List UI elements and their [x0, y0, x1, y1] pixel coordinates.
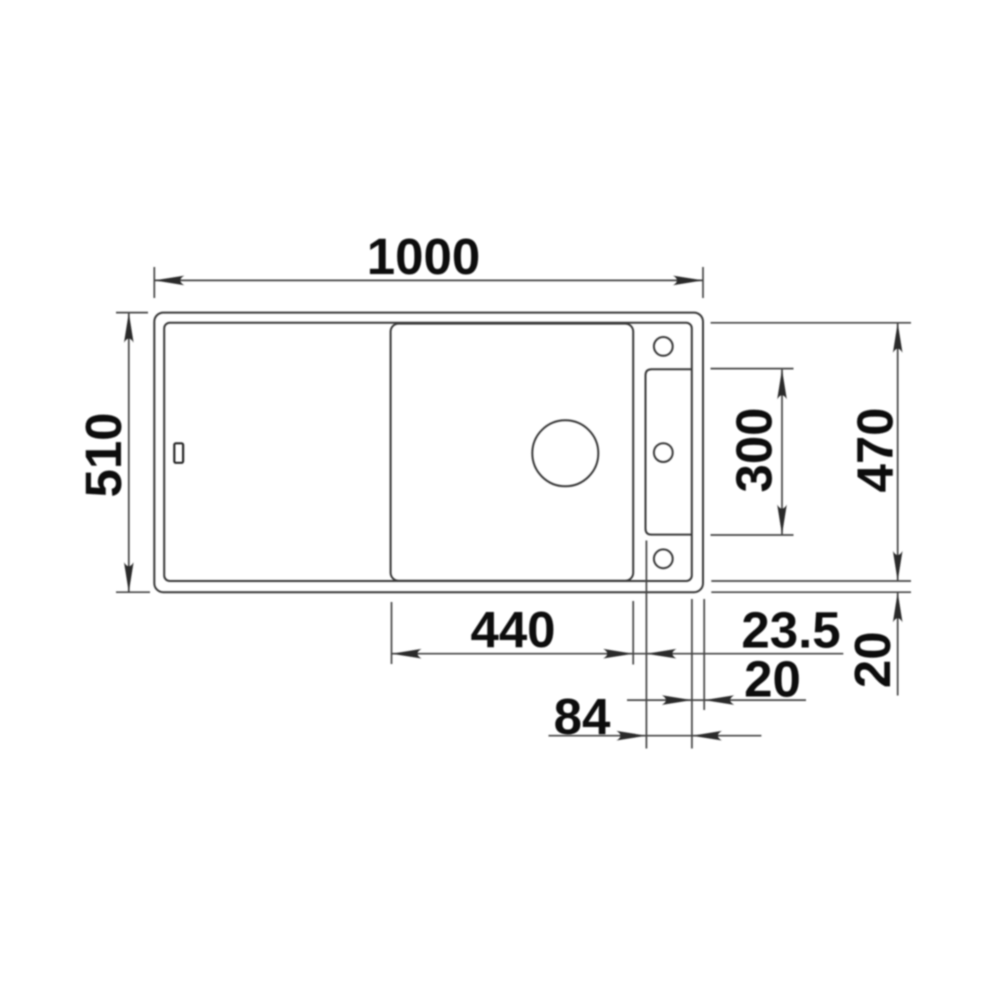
svg-text:1000: 1000 — [367, 228, 480, 285]
svg-text:84: 84 — [554, 688, 611, 745]
svg-text:300: 300 — [726, 407, 783, 492]
svg-text:470: 470 — [846, 407, 903, 492]
svg-text:20: 20 — [844, 631, 901, 688]
svg-text:440: 440 — [470, 601, 555, 658]
svg-text:20: 20 — [744, 651, 801, 708]
svg-text:510: 510 — [75, 412, 132, 497]
